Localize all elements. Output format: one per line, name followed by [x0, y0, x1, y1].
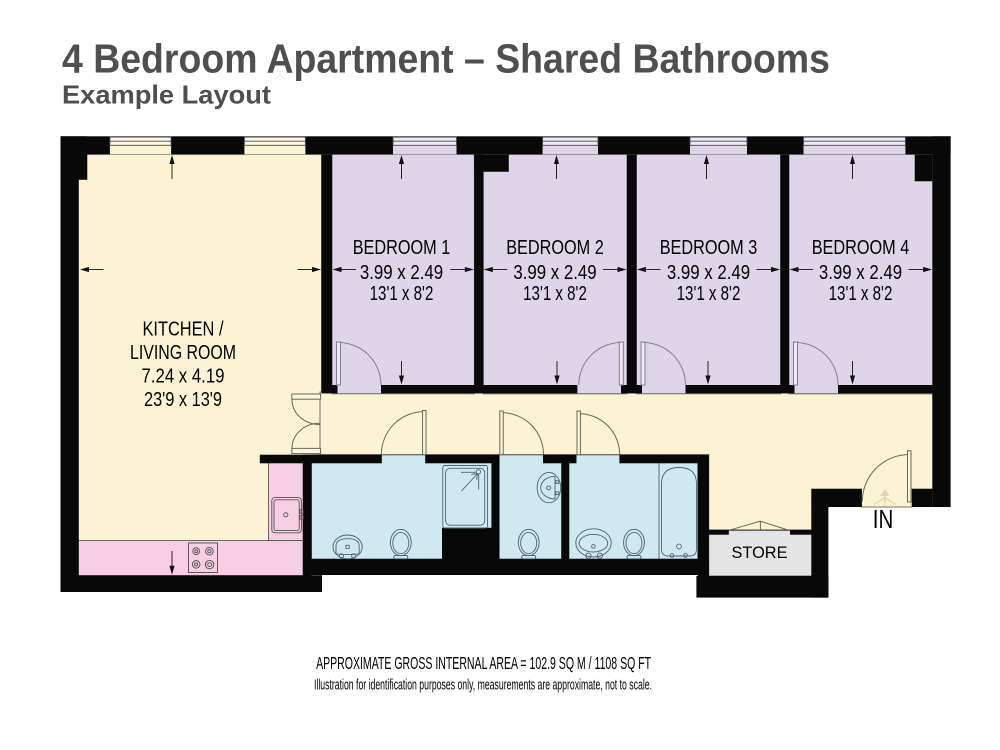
svg-text:BEDROOM 4: BEDROOM 4 [812, 237, 910, 259]
svg-text:13'1 x 8'2: 13'1 x 8'2 [370, 283, 434, 305]
svg-text:KITCHEN /: KITCHEN / [143, 319, 224, 341]
svg-text:BEDROOM 3: BEDROOM 3 [660, 237, 758, 259]
svg-text:4 Bedroom Apartment – Shared B: 4 Bedroom Apartment – Shared Bathrooms [62, 36, 830, 82]
svg-text:7.24 x 4.19: 7.24 x 4.19 [142, 366, 225, 388]
svg-text:13'1 x 8'2: 13'1 x 8'2 [829, 283, 893, 305]
svg-text:BEDROOM 1: BEDROOM 1 [353, 237, 451, 259]
svg-text:BEDROOM 2: BEDROOM 2 [506, 237, 604, 259]
svg-text:APPROXIMATE GROSS INTERNAL ARE: APPROXIMATE GROSS INTERNAL AREA = 102.9 … [316, 653, 651, 673]
svg-text:13'1 x 8'2: 13'1 x 8'2 [523, 283, 587, 305]
svg-text:3.99 x 2.49: 3.99 x 2.49 [513, 262, 596, 284]
svg-text:Illustration for identificatio: Illustration for identification purposes… [314, 678, 652, 694]
svg-text:3.99 x 2.49: 3.99 x 2.49 [360, 262, 443, 284]
svg-text:LIVING ROOM: LIVING ROOM [130, 342, 236, 364]
svg-text:3.99 x 2.49: 3.99 x 2.49 [667, 262, 750, 284]
svg-text:3.99 x 2.49: 3.99 x 2.49 [819, 262, 902, 284]
svg-text:STORE: STORE [732, 543, 788, 562]
svg-text:Example Layout: Example Layout [62, 80, 271, 110]
svg-text:IN: IN [873, 504, 894, 534]
svg-text:23'9 x 13'9: 23'9 x 13'9 [144, 389, 222, 411]
svg-text:13'1 x 8'2: 13'1 x 8'2 [677, 283, 741, 305]
